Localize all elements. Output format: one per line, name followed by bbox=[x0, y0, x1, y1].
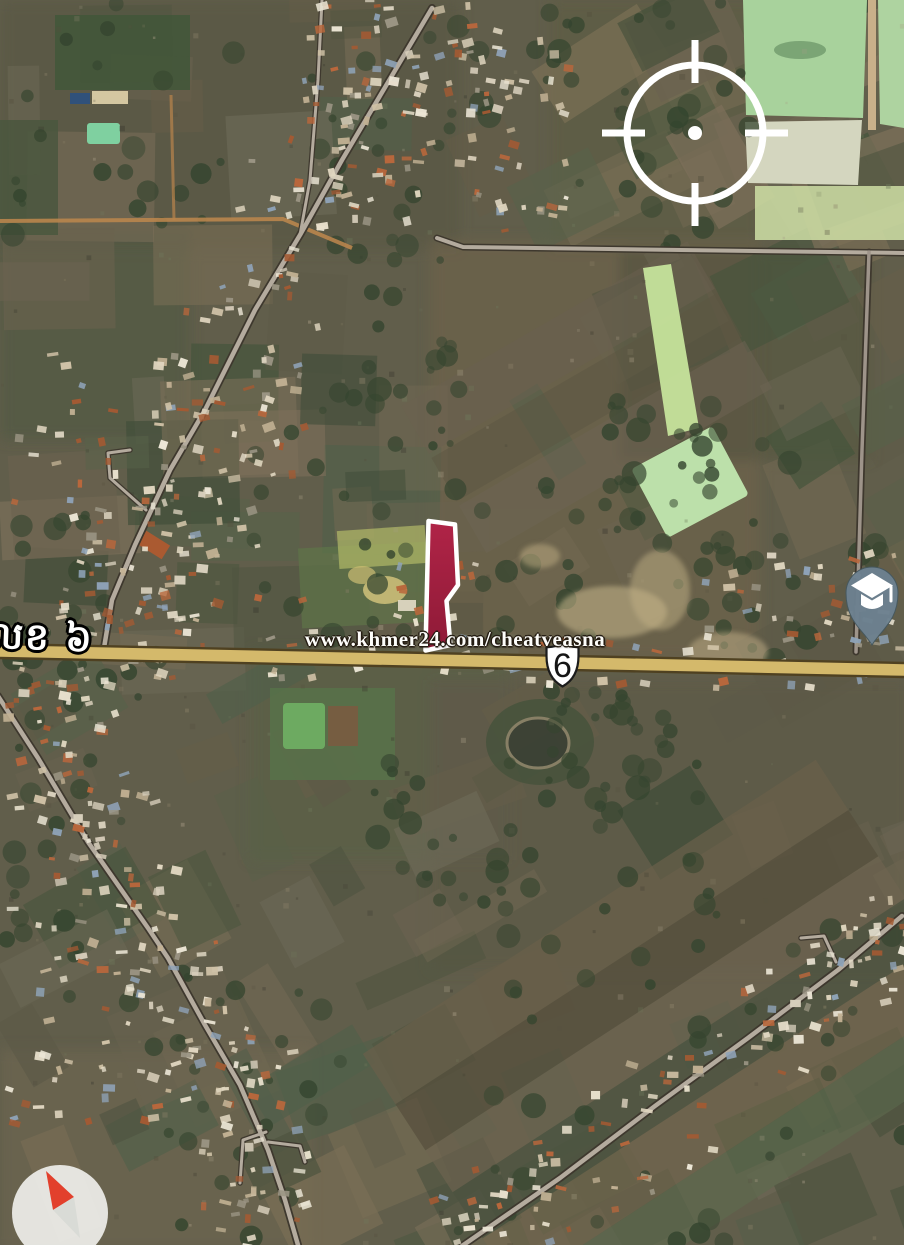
satellite-map[interactable]: 6 លេខ ៦ www.khmer24.com/cheatveasna bbox=[0, 0, 904, 1245]
satellite-imagery: 6 bbox=[0, 0, 904, 1245]
shield-number: 6 bbox=[553, 647, 572, 685]
